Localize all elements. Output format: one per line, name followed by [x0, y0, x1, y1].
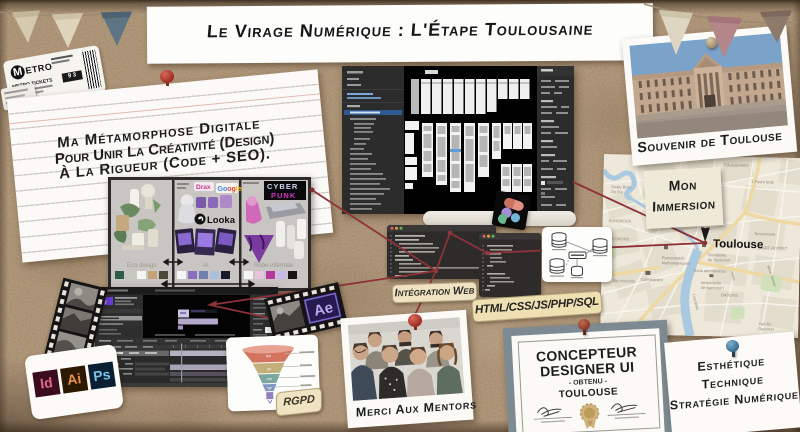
svg-text:aw: aw: [266, 353, 271, 358]
svg-text:me: me: [266, 376, 273, 381]
